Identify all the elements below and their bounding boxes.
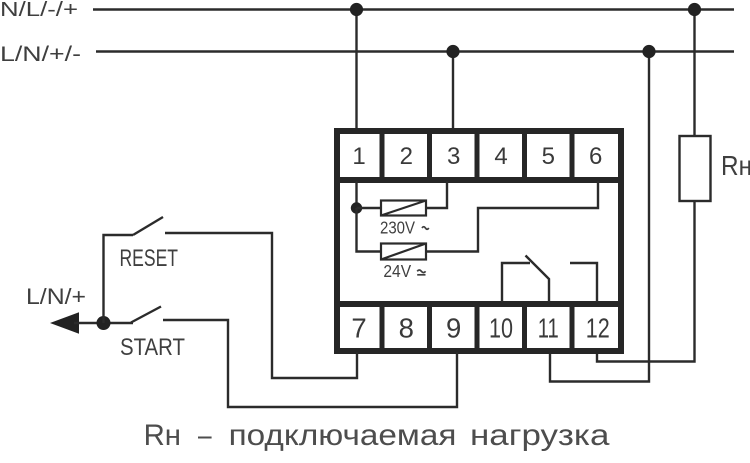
svg-text:N/L/-/+: N/L/-/+ — [0, 0, 78, 21]
svg-text:5: 5 — [542, 143, 555, 170]
svg-text:4: 4 — [494, 143, 507, 170]
svg-text:230V: 230V — [380, 218, 415, 238]
svg-text:7: 7 — [351, 313, 366, 344]
svg-text:L/N/+/-: L/N/+/- — [0, 43, 81, 66]
svg-text:3: 3 — [447, 143, 460, 170]
svg-text:RESET: RESET — [120, 245, 179, 272]
svg-text:8: 8 — [399, 313, 414, 344]
svg-text:1: 1 — [352, 143, 365, 170]
svg-text:10: 10 — [489, 313, 513, 344]
svg-text:START: START — [120, 334, 185, 361]
svg-text:2: 2 — [400, 143, 413, 170]
svg-text:12: 12 — [586, 313, 610, 344]
svg-text:9: 9 — [446, 313, 461, 344]
svg-text:24V: 24V — [383, 261, 411, 281]
svg-text:L/N/+: L/N/+ — [26, 284, 86, 309]
svg-text:11: 11 — [538, 313, 559, 344]
svg-text:Rн: Rн — [721, 150, 750, 181]
svg-text:6: 6 — [589, 143, 602, 170]
